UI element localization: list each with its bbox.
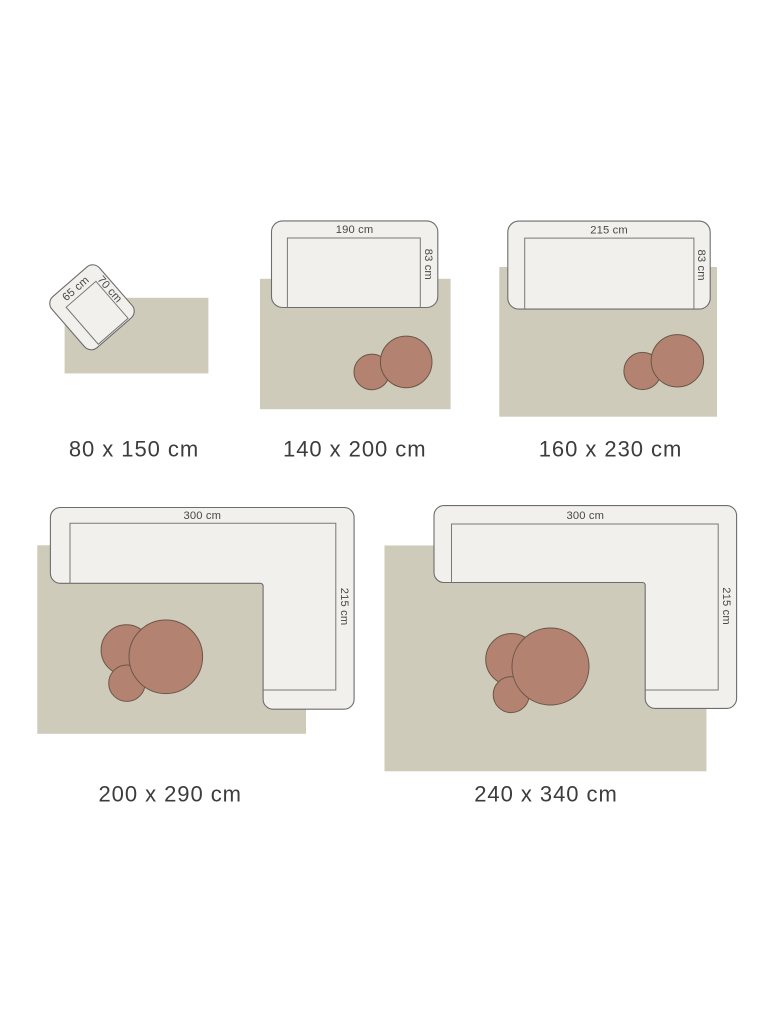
svg-text:160 x 230 cm: 160 x 230 cm bbox=[539, 436, 682, 461]
svg-text:215 cm: 215 cm bbox=[338, 588, 350, 626]
svg-text:300 cm: 300 cm bbox=[184, 510, 222, 522]
svg-text:140 x 200 cm: 140 x 200 cm bbox=[283, 436, 426, 461]
svg-text:215 cm: 215 cm bbox=[720, 587, 732, 625]
svg-text:240 x 340 cm: 240 x 340 cm bbox=[474, 782, 617, 807]
svg-text:300 cm: 300 cm bbox=[567, 510, 605, 522]
svg-text:215 cm: 215 cm bbox=[590, 224, 628, 236]
svg-text:80 x 150 cm: 80 x 150 cm bbox=[69, 436, 199, 461]
svg-text:200 x 290 cm: 200 x 290 cm bbox=[98, 782, 241, 807]
svg-text:83 cm: 83 cm bbox=[695, 249, 707, 280]
svg-text:190 cm: 190 cm bbox=[336, 224, 374, 236]
svg-text:83 cm: 83 cm bbox=[422, 249, 434, 280]
